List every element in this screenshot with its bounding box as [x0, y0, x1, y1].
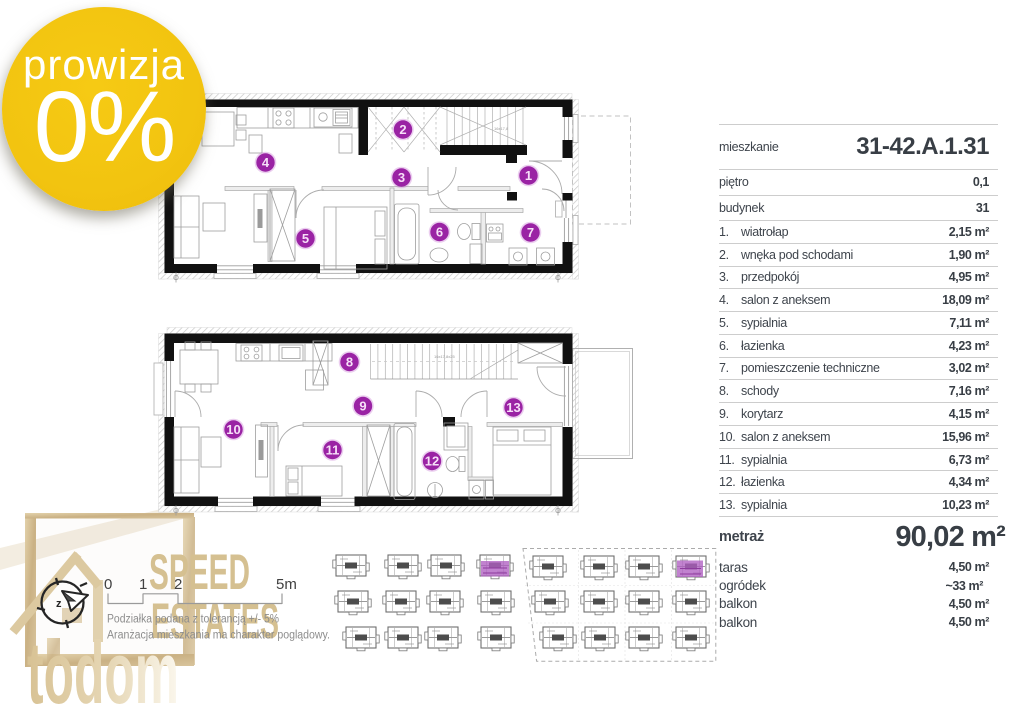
- svg-text:2: 2: [399, 122, 406, 137]
- svg-text:4: 4: [262, 155, 270, 170]
- svg-text:5m: 5m: [276, 576, 297, 593]
- svg-text:Aranżacja mieszkania ma charak: Aranżacja mieszkania ma charakter pogląd…: [107, 630, 330, 642]
- svg-text:z: z: [56, 598, 62, 610]
- svg-text:3: 3: [398, 170, 405, 185]
- svg-text:16x17,8: 16x17,8: [494, 126, 509, 131]
- svg-text:2: 2: [174, 576, 182, 593]
- svg-text:1: 1: [525, 168, 532, 183]
- svg-text:5: 5: [302, 231, 309, 246]
- svg-text:16x17,8x25: 16x17,8x25: [434, 354, 455, 359]
- svg-text:7: 7: [527, 225, 534, 240]
- svg-text:8: 8: [346, 355, 353, 370]
- svg-text:13: 13: [506, 400, 520, 415]
- svg-text:11: 11: [326, 443, 340, 458]
- svg-text:SPEED: SPEED: [149, 544, 250, 600]
- svg-text:6: 6: [436, 225, 443, 240]
- svg-text:Podziałka podana z tolerancją: Podziałka podana z tolerancją +/- 5%: [107, 614, 279, 626]
- svg-text:1: 1: [139, 576, 147, 593]
- svg-text:10: 10: [226, 422, 240, 437]
- svg-text:12: 12: [425, 454, 439, 469]
- svg-text:9: 9: [359, 399, 366, 414]
- svg-text:0: 0: [104, 576, 112, 593]
